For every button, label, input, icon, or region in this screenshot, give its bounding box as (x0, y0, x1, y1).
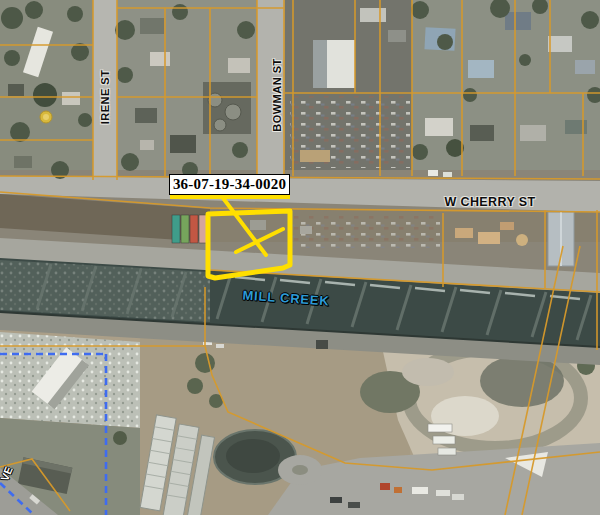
aerial-basemap (0, 0, 600, 515)
gis-map-view[interactable]: IRENE ST BOWMAN ST W CHERRY ST MILL CREE… (0, 0, 600, 515)
street-label-irene: IRENE ST (100, 70, 111, 125)
street-label-cherry: W CHERRY ST (444, 196, 535, 209)
street-label-bowman: BOWMAN ST (272, 58, 283, 132)
parcel-id-callout: 36-07-19-34-0020 (169, 174, 290, 195)
